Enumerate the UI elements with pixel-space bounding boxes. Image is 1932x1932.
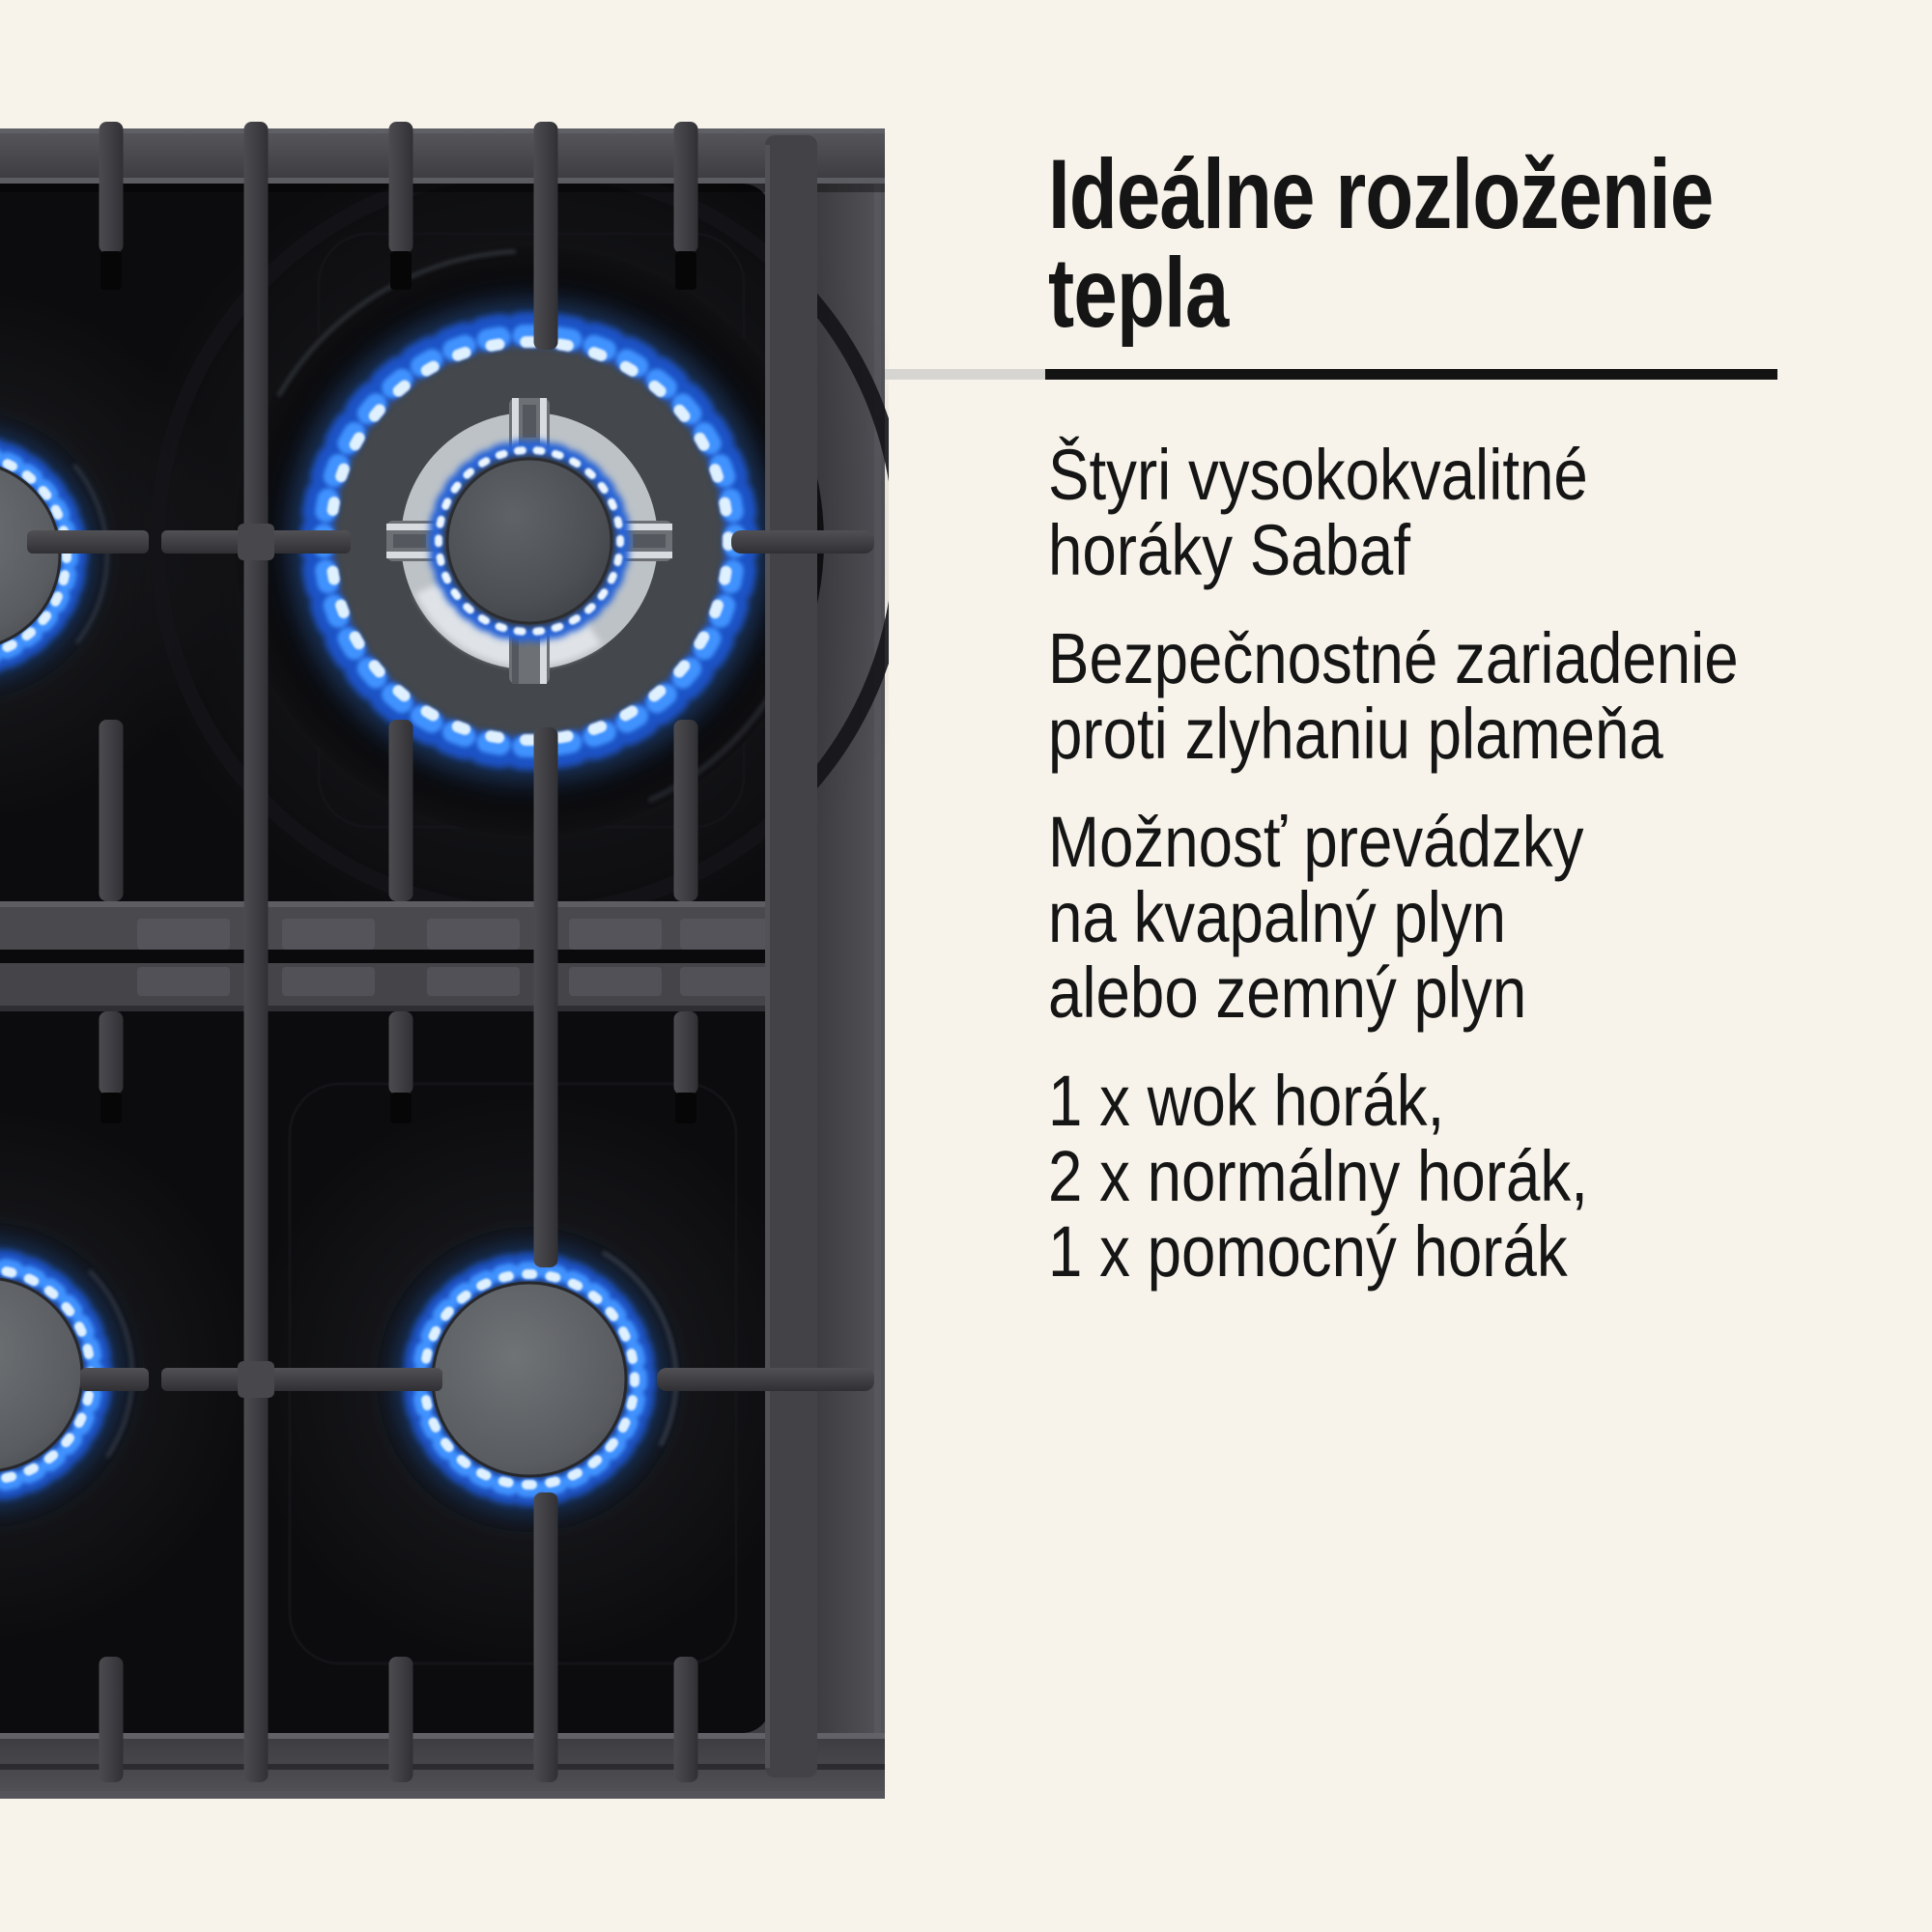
page-title: Ideálne rozloženie tepla	[1048, 145, 1898, 342]
feature-item-gas-types: Možnosť prevádzky na kvapalný plyn alebo…	[1048, 805, 1920, 1031]
feature-list: Štyri vysokokvalitné horáky Sabaf Bezpeč…	[1048, 438, 1932, 1322]
page: Ideálne rozloženie tepla Štyri vysokokva…	[0, 0, 1932, 1932]
feature-item-burner-config: 1 x wok horák, 2 x normálny horák, 1 x p…	[1048, 1064, 1920, 1290]
feature-item-burners: Štyri vysokokvalitné horáky Sabaf	[1048, 438, 1920, 588]
feature-panel: Ideálne rozloženie tepla Štyri vysokokva…	[0, 0, 1932, 1932]
divider-rule	[885, 369, 1777, 380]
feature-item-safety: Bezpečnostné zariadenie proti zlyhaniu p…	[1048, 621, 1920, 772]
